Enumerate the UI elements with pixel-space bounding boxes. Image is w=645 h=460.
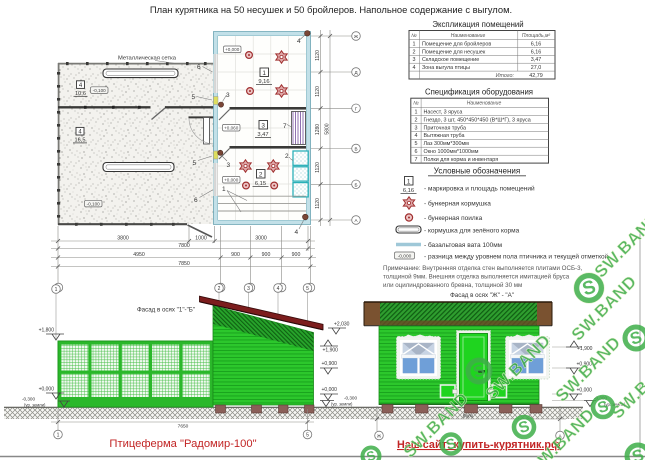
svg-text:2: 2 (415, 117, 418, 123)
svg-text:4: 4 (295, 229, 299, 236)
svg-text:3: 3 (226, 92, 230, 99)
svg-text:-0,300: -0,300 (22, 397, 35, 402)
svg-text:7850: 7850 (178, 261, 190, 267)
svg-text:Примечание: Внутренняя отделка: Примечание: Внутренняя отделка стен выпо… (383, 265, 583, 272)
svg-text:4: 4 (415, 133, 418, 139)
svg-text:(ур. земли): (ур. земли) (331, 402, 353, 407)
svg-text:- кормушка для зелёного корма: - кормушка для зелёного корма (424, 228, 520, 235)
svg-text:-0,100: -0,100 (87, 201, 100, 206)
svg-text:План курятника на 50 несушек и: План курятника на 50 несушек и 50 бройле… (150, 4, 512, 15)
svg-text:Полки для корма и инвентаря: Полки для корма и инвентаря (424, 157, 499, 163)
svg-text:+1,800: +1,800 (39, 328, 55, 334)
svg-text:1: 1 (57, 433, 60, 439)
svg-text:- бункерная поилка: - бункерная поилка (424, 214, 483, 222)
svg-text:900: 900 (231, 252, 240, 258)
svg-text:5800: 5800 (325, 123, 331, 134)
svg-text:1120: 1120 (315, 86, 321, 97)
svg-text:+2,030: +2,030 (334, 322, 350, 328)
svg-text:27,0: 27,0 (531, 65, 542, 71)
svg-text:1280: 1280 (315, 124, 321, 135)
svg-text:Фасад в осях "Ж" - "А": Фасад в осях "Ж" - "А" (450, 292, 514, 299)
svg-text:Зона выгула птицы: Зона выгула птицы (422, 65, 470, 71)
svg-text:6: 6 (415, 149, 418, 155)
svg-text:1: 1 (55, 287, 58, 293)
svg-text:5: 5 (193, 160, 197, 167)
svg-text:Итого:: Итого: (496, 73, 515, 79)
svg-text:+1,900: +1,900 (323, 348, 339, 354)
svg-text:1120: 1120 (315, 162, 321, 173)
svg-text:№: № (413, 101, 419, 107)
svg-text:+0,900: +0,900 (322, 361, 338, 367)
svg-text:Гнездо, 3 шт, 450*450*450 (В*Ш: Гнездо, 3 шт, 450*450*450 (В*Ш*Г), 3 яру… (424, 117, 531, 123)
svg-text:3: 3 (261, 122, 265, 129)
svg-text:Площадь,м²: Площадь,м² (522, 33, 551, 39)
svg-text:Помещение для бройлеров: Помещение для бройлеров (422, 40, 491, 47)
svg-text:5: 5 (306, 286, 309, 292)
svg-text:2: 2 (259, 171, 263, 178)
svg-text:В: В (354, 147, 357, 152)
svg-text:4: 4 (277, 286, 280, 292)
svg-text:Экспликация помещений: Экспликация помещений (432, 20, 523, 29)
svg-text:Приточная труба: Приточная труба (424, 125, 467, 131)
svg-text:7800: 7800 (178, 243, 190, 249)
svg-text:1: 1 (222, 186, 226, 193)
svg-text:Наименование: Наименование (467, 101, 502, 107)
svg-text:6: 6 (194, 197, 198, 204)
svg-text:Б: Б (354, 182, 357, 187)
svg-text:Лаз 300мм*300мм: Лаз 300мм*300мм (424, 141, 470, 147)
svg-text:- разница между уровнем пола п: - разница между уровнем пола птичника и … (424, 253, 609, 261)
svg-text:(ур. земли): (ур. земли) (24, 403, 46, 408)
svg-text:-0,100: -0,100 (93, 88, 106, 93)
svg-text:+0,000: +0,000 (224, 177, 239, 182)
svg-text:Птицеферма "Радомир-100": Птицеферма "Радомир-100" (109, 438, 256, 450)
svg-text:6,16: 6,16 (531, 49, 542, 55)
svg-text:7: 7 (415, 157, 418, 163)
svg-text:5: 5 (192, 94, 196, 101)
svg-text:3: 3 (415, 125, 418, 131)
svg-text:1: 1 (407, 178, 411, 185)
svg-text:- маркировка и площадь помещен: - маркировка и площадь помещений (424, 185, 535, 193)
svg-text:1120: 1120 (315, 198, 321, 209)
svg-text:- базальтовая вата 100мм: - базальтовая вата 100мм (424, 241, 503, 249)
svg-text:900: 900 (292, 252, 301, 258)
svg-text:Вытяжная труба: Вытяжная труба (424, 133, 465, 139)
svg-text:4950: 4950 (133, 252, 145, 258)
svg-text:-0,300: -0,300 (344, 396, 357, 401)
svg-text:4: 4 (413, 65, 416, 71)
svg-text:Помещение для несушек: Помещение для несушек (422, 49, 486, 55)
svg-text:№: № (411, 33, 417, 39)
svg-text:3: 3 (413, 57, 416, 63)
svg-text:900: 900 (262, 252, 271, 258)
svg-text:3: 3 (247, 286, 250, 292)
svg-text:Окно 1000мм*1000мм: Окно 1000мм*1000мм (424, 149, 479, 155)
svg-text:7: 7 (283, 123, 287, 130)
svg-text:6: 6 (197, 64, 201, 71)
svg-text:+0,000: +0,000 (225, 47, 240, 52)
svg-text:2: 2 (218, 286, 221, 292)
svg-text:3,47: 3,47 (531, 57, 542, 63)
svg-text:- бункерная кормушка: - бункерная кормушка (424, 200, 491, 208)
svg-text:1120: 1120 (315, 50, 321, 61)
svg-text:Складское помещение: Складское помещение (422, 57, 479, 63)
svg-text:Спецификация оборудования: Спецификация оборудования (425, 88, 533, 97)
svg-text:Условные обозначения: Условные обозначения (434, 167, 520, 176)
svg-text:42,79: 42,79 (529, 73, 543, 79)
svg-text:3000: 3000 (255, 236, 267, 242)
svg-text:2.: 2. (285, 153, 291, 160)
svg-text:+0,000: +0,000 (39, 387, 55, 393)
svg-text:1: 1 (262, 70, 266, 77)
svg-text:+0,060: +0,060 (224, 125, 239, 130)
svg-text:1000: 1000 (195, 236, 207, 242)
svg-text:Фасад в осях "1"-"Б": Фасад в осях "1"-"Б" (137, 307, 195, 314)
svg-text:+0,000: +0,000 (322, 387, 338, 393)
svg-text:3800: 3800 (117, 236, 129, 242)
svg-text:1: 1 (413, 41, 416, 47)
svg-text:2: 2 (413, 49, 416, 55)
svg-text:толщиной 9мм. Внешняя отделка: толщиной 9мм. Внешняя отделка выполняетс… (383, 274, 570, 281)
svg-text:Насест, 3 яруса: Насест, 3 яруса (424, 109, 463, 115)
svg-text:Металлическая сетка: Металлическая сетка (118, 56, 177, 62)
svg-text:-0,000: -0,000 (398, 253, 412, 259)
svg-text:или оцилиндрованного бревна, т: или оцилиндрованного бревна, толщиной 30… (383, 282, 522, 289)
svg-text:7650: 7650 (178, 424, 189, 430)
svg-text:1: 1 (415, 109, 418, 115)
svg-text:Наименование: Наименование (451, 33, 486, 39)
svg-text:3: 3 (227, 162, 231, 169)
svg-text:6,16: 6,16 (531, 41, 542, 47)
svg-text:5800: 5800 (463, 414, 474, 420)
svg-text:5: 5 (306, 433, 309, 439)
svg-text:5: 5 (415, 141, 418, 147)
